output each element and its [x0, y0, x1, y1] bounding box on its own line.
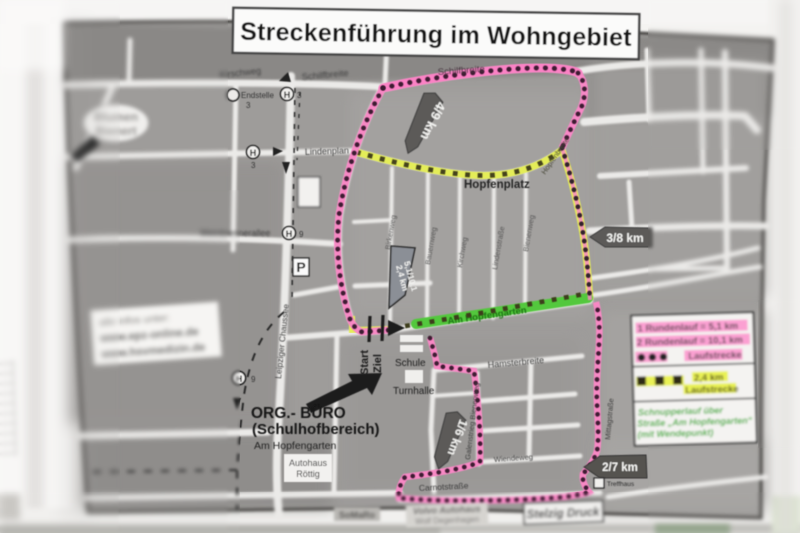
svg-text:ORG.- BÜRO: ORG.- BÜRO [251, 405, 346, 422]
svg-text:(mit Wendepunkt): (mit Wendepunkt) [637, 427, 713, 439]
svg-text:Blumen: Blumen [94, 110, 138, 124]
svg-text:Bienert: Bienert [95, 124, 136, 138]
svg-text:Turnhalle: Turnhalle [393, 386, 435, 397]
svg-text:2,4 km: 2,4 km [694, 372, 724, 384]
svg-text:Laufstrecke: Laufstrecke [685, 384, 739, 396]
svg-text:3/8 km: 3/8 km [606, 231, 643, 245]
svg-text:H: H [284, 90, 291, 100]
svg-text:Treffhaus: Treffhaus [607, 481, 635, 488]
svg-text:(Schulhofbereich): (Schulhofbereich) [252, 421, 380, 438]
svg-text:SoMaRo: SoMaRo [339, 510, 376, 520]
svg-text:Ziel: Ziel [372, 354, 384, 373]
svg-text:H: H [286, 229, 293, 239]
svg-text:Stelzig Druck: Stelzig Druck [526, 507, 600, 522]
svg-text:9: 9 [299, 230, 304, 239]
svg-text:Endstelle: Endstelle [241, 91, 274, 100]
svg-text:H: H [236, 374, 243, 384]
svg-text:Am Hopfengarten: Am Hopfengarten [254, 440, 336, 452]
svg-text:9: 9 [251, 375, 256, 384]
svg-text:3: 3 [297, 91, 302, 100]
svg-text:Lindenplan: Lindenplan [305, 145, 349, 157]
svg-text:Start: Start [359, 350, 371, 375]
svg-text:P: P [296, 259, 305, 275]
svg-text:Autohaus: Autohaus [289, 458, 328, 468]
svg-text:2/7 km: 2/7 km [602, 462, 638, 474]
svg-text:Schule: Schule [395, 358, 426, 369]
svg-text:3: 3 [246, 101, 251, 110]
svg-text:Laufstrecke: Laufstrecke [688, 350, 742, 362]
svg-text:Hopfenplatz: Hopfenplatz [464, 179, 530, 191]
svg-text:Röttig: Röttig [296, 469, 320, 479]
svg-text:H: H [250, 148, 257, 158]
svg-text:Weinbrennerallee: Weinbrennerallee [200, 228, 270, 238]
svg-text:3: 3 [251, 161, 256, 170]
